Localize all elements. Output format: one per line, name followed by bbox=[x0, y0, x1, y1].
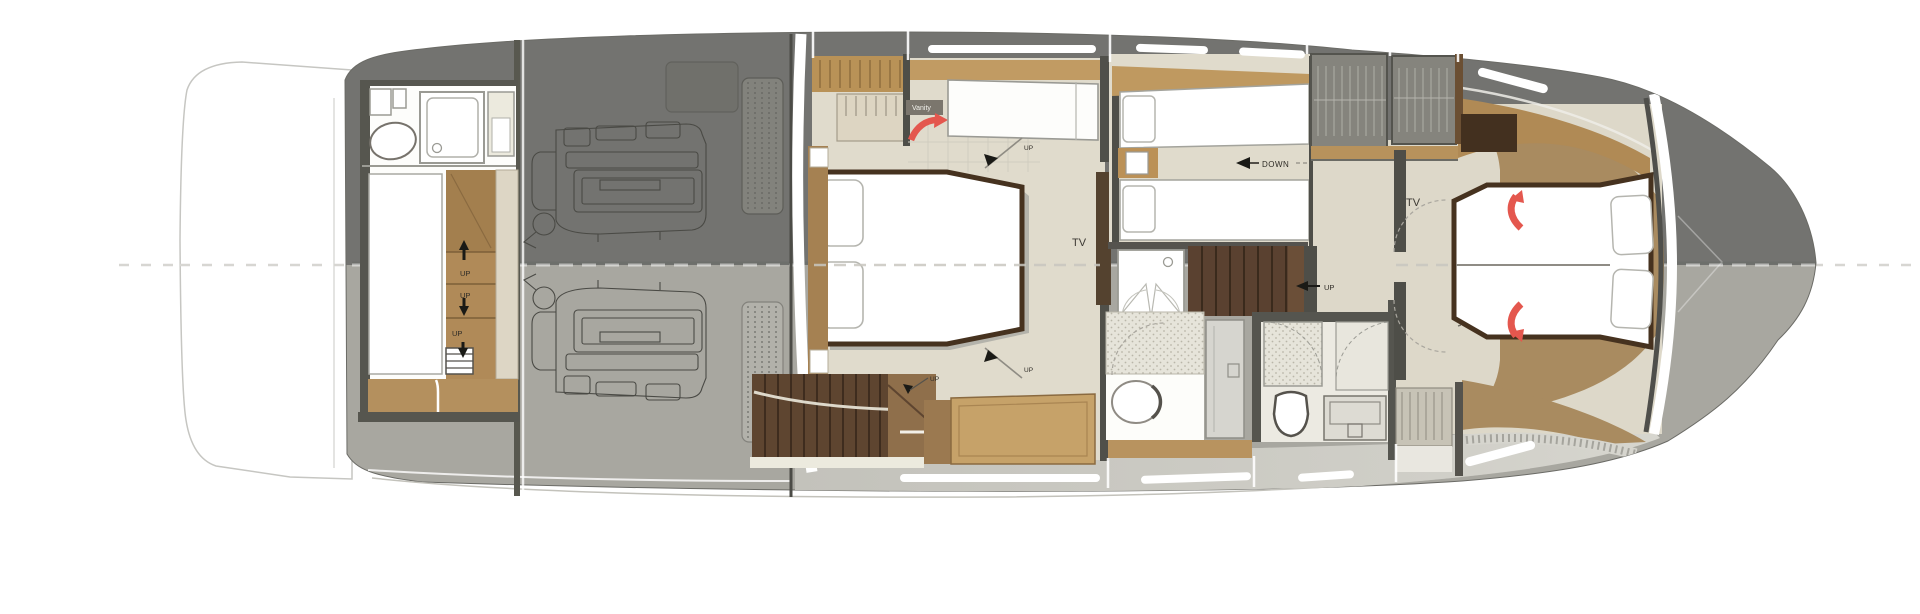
svg-text:UP: UP bbox=[1324, 283, 1334, 292]
svg-text:DOWN: DOWN bbox=[1262, 160, 1289, 169]
svg-text:UP: UP bbox=[1024, 367, 1033, 374]
svg-text:TV: TV bbox=[1072, 237, 1087, 249]
svg-text:UP: UP bbox=[452, 329, 462, 338]
svg-text:UP: UP bbox=[930, 376, 939, 383]
svg-text:UP: UP bbox=[1024, 145, 1033, 152]
svg-text:Vanity: Vanity bbox=[912, 105, 931, 112]
svg-text:UP: UP bbox=[460, 269, 470, 278]
